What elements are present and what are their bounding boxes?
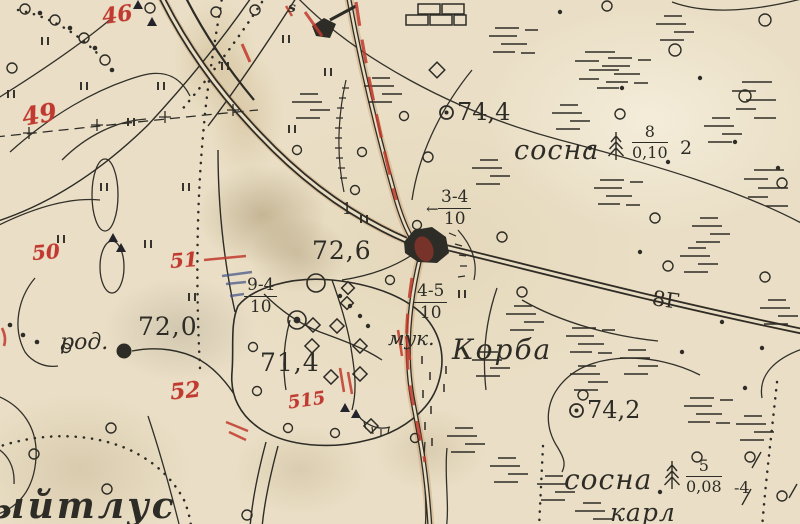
- peat-dashes: [422, 356, 446, 446]
- fraction-numerator: 5: [686, 458, 722, 477]
- forest-stand-fraction-bottom: 5 0,08: [686, 458, 722, 495]
- label-letter-s: s: [288, 1, 296, 15]
- fraction-denominator: 0,10: [632, 143, 668, 161]
- spring-dot-icon: [117, 344, 132, 359]
- road-grade-fraction-9-4: 9-4 10: [244, 277, 277, 316]
- red-annotation-515: 515: [287, 389, 327, 412]
- label-spot-height-74-2: 74,2: [568, 398, 640, 422]
- label-village-korba: Корба: [452, 336, 552, 364]
- fraction-numerator: 8: [632, 124, 668, 143]
- forest-stand-side-number-top: 2: [680, 139, 692, 158]
- fraction-denominator: 10: [244, 297, 277, 316]
- map-canvas: 74,4 сосна 8 0,10 2 3-4 10 ← 1 72,6 9-4 …: [0, 0, 800, 524]
- road-fill-layer: [160, 0, 800, 524]
- road-grade-fraction-4-5: 4-5 10: [414, 283, 447, 322]
- red-annotation-52: 52: [169, 378, 202, 403]
- label-mill-abbr: мук.: [388, 328, 434, 348]
- brick-ruin-icon: [406, 4, 466, 25]
- map-linework: [0, 0, 800, 524]
- label-pine-forest-top: сосна: [514, 137, 599, 164]
- label-spring-abbr: род.: [60, 332, 108, 354]
- label-elevation-72-6: 72,6: [312, 238, 372, 263]
- spot-height-value: 74,4: [457, 100, 510, 124]
- pine-tree-icon: [664, 460, 680, 490]
- pine-tree-icon: [608, 131, 624, 161]
- fraction-numerator: 4-5: [414, 283, 447, 303]
- label-pine-forest-bottom: сосна: [564, 466, 652, 494]
- label-spot-height-74-4: 74,4: [438, 100, 510, 124]
- triangle-symbols-layer: [108, 0, 361, 418]
- forest-stand-side-number-bottom: -4: [734, 480, 750, 496]
- slash-marks: [742, 452, 797, 505]
- fraction-denominator: 10: [414, 303, 447, 322]
- red-annotation-49: 49: [20, 99, 59, 130]
- fraction-denominator: 0,08: [686, 477, 722, 495]
- grass-symbols-layer: [8, 35, 465, 301]
- red-annotation-50: 50: [31, 241, 60, 263]
- label-place-name-partial: ыйтлус: [0, 488, 177, 524]
- red-annotation-51: 51: [169, 249, 198, 271]
- fraction-numerator: 9-4: [244, 277, 277, 297]
- forest-stand-fraction-top: 8 0,10: [632, 124, 668, 161]
- label-dwarf-abbr: карл: [610, 500, 676, 524]
- spot-height-value: 74,2: [587, 398, 640, 422]
- arrow-left-icon: ←: [426, 202, 439, 217]
- red-overprint-layer: [2, 2, 437, 462]
- road-grade-fraction-3-4: 3-4 10 ←: [438, 189, 471, 228]
- fraction-numerator: 3-4: [438, 189, 471, 209]
- fraction-denominator: 10: [438, 209, 471, 228]
- spot-height-icon: [568, 402, 585, 419]
- label-digit-1: 1: [342, 201, 352, 217]
- label-road-width-mark: 8Г: [651, 288, 681, 313]
- label-elevation-72-0: 72,0: [138, 314, 198, 339]
- spot-height-icon: [438, 104, 455, 121]
- label-elevation-71-4: 71,4: [260, 350, 320, 375]
- red-annotation-46: 46: [101, 2, 134, 28]
